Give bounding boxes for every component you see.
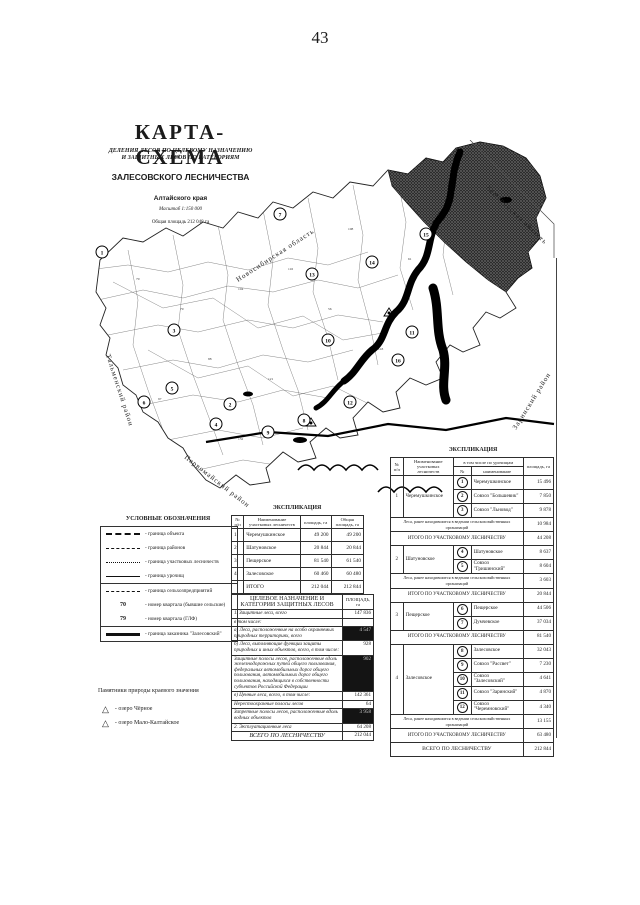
svg-text:5: 5 <box>171 387 174 393</box>
legend-title: УСЛОВНЫЕ ОБОЗНАЧЕНИЯ <box>98 516 238 522</box>
monument-lake-malo-kaltayskoye: △ - озеро Мало-Калтайское <box>102 716 252 730</box>
purpose-table: ЦЕЛЕВОЕ НАЗНАЧЕНИЕ И КАТЕГОРИИ ЗАЩИТНЫХ … <box>231 594 374 741</box>
legend-item-district-boundary: - граница районов <box>101 541 237 555</box>
table-row-subtotal: ИТОГО ПО УЧАСТКОВОМУ ЛЕСНИЧЕСТВУ 44 208 <box>391 532 554 546</box>
legend-item-object-boundary: - граница объекта <box>101 527 237 541</box>
subforestry-boundary-line-icon <box>104 562 142 563</box>
table-row: 1. Защитные леса, всего 147 836 <box>232 610 374 619</box>
svg-text:88: 88 <box>208 357 212 361</box>
table-row: а) Леса, расположенные на особо охраняем… <box>232 627 374 641</box>
table-row-total: ИТОГО 212 044 212 844 <box>232 581 364 594</box>
table-row: 2 Шатуновское 20 844 20 844 <box>232 542 364 555</box>
col-iname: наименование <box>471 467 523 476</box>
svg-text:79: 79 <box>180 307 184 311</box>
legend-item-reserve-boundary: - граница заказника "Залесовский" <box>101 626 237 641</box>
table-row: Нерестоохранные полосы лесов 64 <box>232 700 374 709</box>
legend-item-subforestry-boundary: - граница участковых лесничеств <box>101 555 237 569</box>
sheet-frame-right <box>556 258 557 738</box>
svg-text:1: 1 <box>101 251 104 257</box>
table-row: Защитные полосы лесов, расположенные вдо… <box>232 655 374 692</box>
circled-number-icon: 2 <box>457 491 468 502</box>
circled-number-icon: 8 <box>457 646 468 657</box>
legend-box: - граница объекта - граница районов - гр… <box>100 526 238 642</box>
svg-text:16: 16 <box>395 359 401 365</box>
purpose-area-header: ПЛОЩАДЬ, га <box>343 595 374 610</box>
quarter-number-rural-sample: 70 <box>104 602 142 608</box>
urochishche-boundary-line-icon <box>104 576 142 577</box>
svg-text:61: 61 <box>408 257 412 261</box>
svg-text:6: 6 <box>143 401 146 407</box>
monument-lake-chernoye: △ - озеро Чёрное <box>102 702 252 716</box>
document-page: 43 КАРТА-СХЕМА ДЕЛЕНИЯ ЛЕСОВ ПО ЦЕЛЕВОМУ… <box>0 0 640 905</box>
circled-number-icon: 12 <box>457 702 468 713</box>
svg-text:2: 2 <box>229 403 232 409</box>
col-incl: в том числе по урочищам <box>453 458 523 467</box>
svg-text:9: 9 <box>267 431 270 437</box>
col-name: Наименование участковых лесничеств <box>403 458 453 476</box>
svg-text:11: 11 <box>409 331 414 337</box>
object-boundary-line-icon <box>104 533 142 535</box>
svg-text:3: 3 <box>173 329 176 335</box>
svg-text:104: 104 <box>238 287 244 291</box>
table-row: 1 Черемушкинское 49 200 49 200 <box>232 529 364 542</box>
svg-text:14: 14 <box>369 261 375 267</box>
svg-text:10: 10 <box>325 339 331 345</box>
table-row: 4 Залесовское 60 460 60 480 <box>232 568 364 581</box>
col-no: № п/п <box>391 458 404 476</box>
explication-right-table: № п/п Наименование участковых лесничеств… <box>390 457 554 757</box>
table-row-grand-total: ВСЕГО ПО ЛЕСНИЧЕСТВУ 212 044 <box>232 732 374 741</box>
page-number: 43 <box>0 28 640 48</box>
table-row: в) Ценные леса, всего, в том числе: 142 … <box>232 692 374 701</box>
table-row: 2. Эксплуатационные леса 64 208 <box>232 723 374 732</box>
circled-number-icon: 7 <box>457 618 468 629</box>
col-area: площадь, га <box>300 516 331 529</box>
circled-number-icon: 10 <box>457 674 468 685</box>
table-row-subtotal: ИТОГО ПО УЧАСТКОВОМУ ЛЕСНИЧЕСТВУ 81 540 <box>391 630 554 644</box>
table-row: в том числе: <box>232 618 374 627</box>
table-row-former: Леса, ранее находившиеся в ведении сельс… <box>391 574 554 588</box>
col-name: Наименование участковых лесничеств <box>244 516 300 529</box>
circled-number-icon: 9 <box>457 660 468 671</box>
table-row-subtotal: ИТОГО ПО УЧАСТКОВОМУ ЛЕСНИЧЕСТВУ 63 480 <box>391 729 554 743</box>
legend-item-urochishche-boundary: - граница урочищ <box>101 569 237 583</box>
legend-item-quarter-number-rural: 70 - номер квартала (бывшие сельские) <box>101 598 237 612</box>
circled-number-icon: 5 <box>457 561 468 572</box>
explication-center-title: ЭКСПЛИКАЦИЯ <box>230 505 364 511</box>
triangle-icon: △ <box>102 718 109 729</box>
quarter-number-glf-sample: 79 <box>104 616 142 622</box>
svg-text:8: 8 <box>303 419 306 425</box>
table-row-former: Леса, ранее находившиеся в ведении сельс… <box>391 714 554 728</box>
legend-item-quarter-number-glf: 79 - номер квартала (ГЛФ) <box>101 612 237 626</box>
svg-text:13: 13 <box>309 273 315 279</box>
table-row: 3 Пещерское 81 540 61 540 <box>232 555 364 568</box>
col-area: площадь, га <box>523 458 553 476</box>
table-row-subtotal: ИТОГО ПО УЧАСТКОВОМУ ЛЕСНИЧЕСТВУ 20 844 <box>391 588 554 602</box>
table-row: Запретные полосы лесов, расположенные вд… <box>232 709 374 723</box>
reserve-boundary-line-icon <box>104 633 142 636</box>
svg-text:116: 116 <box>288 267 293 271</box>
circled-number-icon: 3 <box>457 505 468 516</box>
svg-text:56: 56 <box>328 307 332 311</box>
svg-text:70: 70 <box>136 277 140 281</box>
triangle-icon: △ <box>102 704 109 715</box>
table-row: 1 Черемушкинское 1 Черемушкинское 15 496 <box>391 476 554 490</box>
circled-number-icon: 4 <box>457 547 468 558</box>
svg-text:4: 4 <box>215 423 218 429</box>
circled-number-icon: 1 <box>457 477 468 488</box>
table-row-former: Леса, ранее находившиеся в ведении сельс… <box>391 518 554 532</box>
district-boundary-line-icon <box>104 548 142 549</box>
svg-text:12: 12 <box>347 401 353 407</box>
monuments-title: Памятники природы краевого значения <box>98 688 248 694</box>
table-row: 3 Пещерское 6 Пещерское 44 506 <box>391 602 554 616</box>
legend-item-farm-boundary: - граница сельхозпредприятий <box>101 583 237 598</box>
table-row: 2 Шатуновское 4 Шатуновское 8 637 <box>391 546 554 560</box>
svg-text:7: 7 <box>279 213 282 219</box>
table-row: 4 Залесовское 8 Залесовское 32 043 <box>391 644 554 658</box>
svg-text:15: 15 <box>423 233 429 239</box>
monuments-list: △ - озеро Чёрное △ - озеро Мало-Калтайск… <box>102 702 252 730</box>
col-n: № п/п <box>232 516 244 529</box>
col-total: Общая площадь, га <box>331 516 363 529</box>
circled-number-icon: 6 <box>457 604 468 615</box>
col-n: № <box>453 467 471 476</box>
explication-right-title: ЭКСПЛИКАЦИЯ <box>392 447 554 453</box>
svg-text:97: 97 <box>158 397 162 401</box>
table-row-grand-total: ВСЕГО ПО ЛЕСНИЧЕСТВУ 212 844 <box>391 743 554 757</box>
purpose-header: ЦЕЛЕВОЕ НАЗНАЧЕНИЕ И КАТЕГОРИИ ЗАЩИТНЫХ … <box>232 595 343 610</box>
explication-center-table: № п/п Наименование участковых лесничеств… <box>231 515 364 594</box>
circled-number-icon: 11 <box>457 688 468 699</box>
table-row: б) Леса, выполняющие функции защиты прир… <box>232 641 374 655</box>
svg-text:108: 108 <box>348 227 354 231</box>
farm-boundary-line-icon <box>104 591 142 592</box>
svg-text:121: 121 <box>268 377 274 381</box>
